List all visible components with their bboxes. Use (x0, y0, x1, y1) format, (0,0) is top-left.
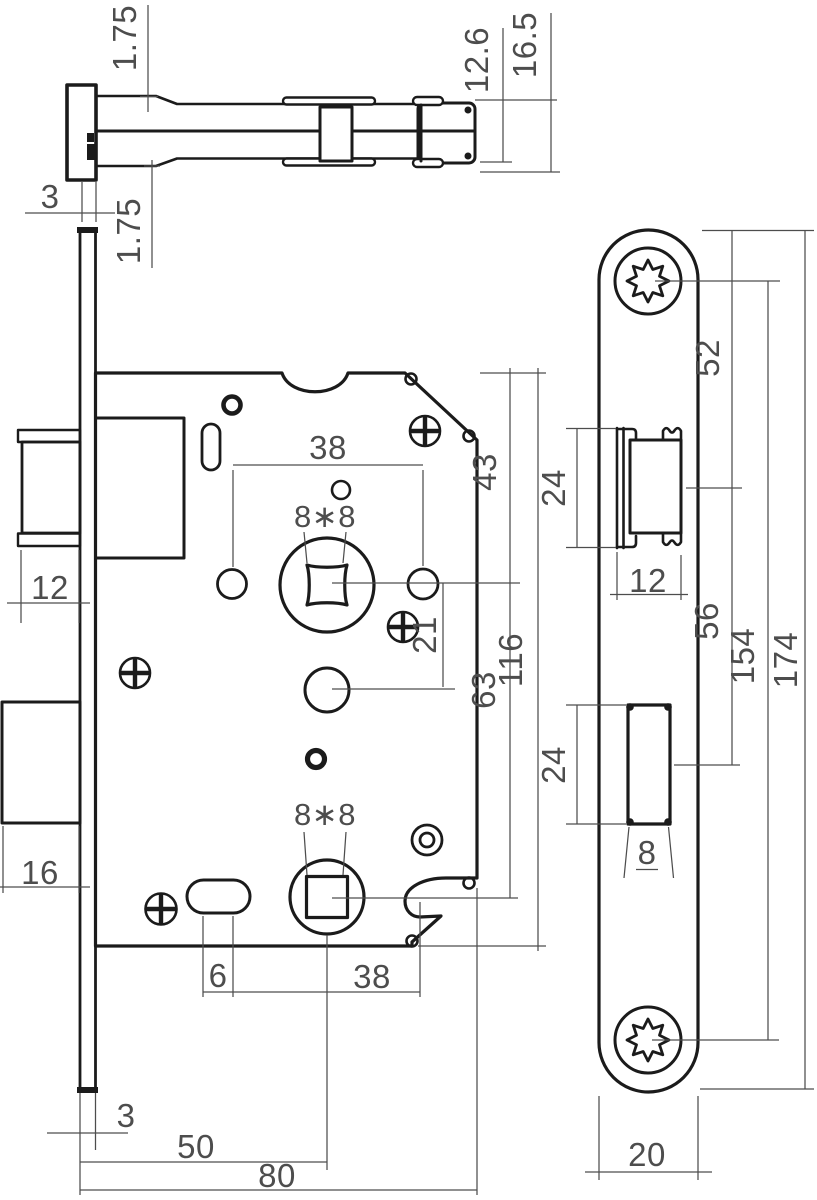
nut-corner-dot2 (465, 153, 472, 160)
hub-circle-upper (280, 538, 374, 632)
dim-label-8: 8 (638, 834, 657, 871)
fixing-hole-right (408, 569, 438, 599)
faceplate-view (599, 230, 698, 1092)
latch-body (96, 418, 185, 558)
dim-label-3-bottom: 3 (117, 1097, 136, 1134)
dim-label-3-top: 3 (41, 178, 60, 215)
spindle-tube-section (320, 107, 352, 161)
faceplate-section (67, 85, 96, 180)
latch-cutout (617, 428, 681, 548)
dim-label-24-latch: 24 (535, 469, 572, 507)
ring-hole-outer (412, 825, 442, 855)
hub-square-lower (307, 877, 348, 918)
front-view-dim-labels: 38 8∗8 43 12 21 116 63 16 8∗8 6 38 3 50 … (21, 429, 529, 1194)
top-section-view (67, 85, 475, 180)
nut-ear-bottom (413, 159, 443, 167)
dim-label-20: 20 (628, 1136, 666, 1173)
dim-label-24-bolt: 24 (535, 746, 572, 784)
ring-hole-inner (420, 833, 434, 847)
dim-label-38-bottom: 38 (353, 958, 391, 995)
dim-label-38-top: 38 (309, 429, 347, 466)
dim-24-latch (566, 428, 616, 548)
deadbolt (2, 702, 80, 823)
fixing-hole-left (218, 570, 247, 599)
pin-hole (224, 397, 241, 414)
faceplate-top-cap (77, 227, 98, 233)
dim-label-80: 80 (258, 1157, 296, 1194)
dim-label-21: 21 (406, 616, 443, 654)
dim-label-12-cutout: 12 (629, 562, 667, 599)
dim-label-154: 154 (724, 628, 761, 685)
slot-vertical (202, 424, 220, 470)
latch-interface-mark (87, 133, 94, 142)
dim-label-52: 52 (689, 339, 726, 377)
dim-label-16: 16 (21, 854, 59, 891)
faceplate-edge (80, 230, 96, 1090)
nut-corner-dot (465, 107, 472, 114)
pin-hole-center (308, 751, 325, 768)
leader-8x8-bottom (304, 832, 346, 875)
dim-label-63: 63 (465, 671, 502, 709)
front-view-dimensions (0, 368, 546, 1195)
dim-3-top (25, 182, 115, 222)
hub-square-upper (307, 565, 347, 605)
dim-label-126: 12.6 (458, 27, 495, 93)
dim-line-80 (80, 888, 477, 1195)
phillips-screw-4 (146, 894, 177, 925)
phillips-screw-1 (410, 416, 440, 446)
hub-boss-top (283, 98, 375, 105)
slot-horizontal (187, 880, 250, 913)
nut-ear-top (413, 97, 443, 105)
latch-interface-mark2 (87, 144, 95, 160)
dim-label-6: 6 (209, 957, 228, 994)
front-view (2, 227, 477, 1093)
latch-head-cap-bottom (18, 534, 80, 547)
cylinder-hole (305, 668, 349, 712)
dim-label-43: 43 (466, 453, 503, 491)
dim-label-50: 50 (177, 1128, 215, 1165)
dim-label-175-top: 1.75 (106, 5, 143, 71)
dim-label-175-bottom: 1.75 (110, 198, 147, 264)
dim-label-8x8-top: 8∗8 (294, 499, 356, 534)
dim-label-8x8-bottom: 8∗8 (294, 797, 356, 832)
dim-label-174: 174 (767, 632, 804, 689)
dim-label-165: 16.5 (506, 12, 543, 78)
dim-label-56: 56 (688, 602, 725, 640)
faceplate-bottom-cap (77, 1087, 98, 1093)
faceplate-outline (599, 230, 698, 1092)
dim-label-12-latch: 12 (31, 569, 69, 606)
latch-head (22, 442, 80, 533)
lock-technical-drawing: 1.75 12.6 16.5 3 1.75 (0, 0, 817, 1200)
dim-24-bolt (566, 705, 626, 824)
hub-circle-lower (290, 860, 364, 934)
drawing-canvas: 1.75 12.6 16.5 3 1.75 (0, 0, 817, 1200)
phillips-screw-3 (120, 658, 150, 688)
latch-head-cap-top (18, 430, 80, 442)
deadbolt-cutout (626, 703, 672, 826)
small-hole-top (332, 481, 350, 499)
case-outline (96, 373, 478, 946)
